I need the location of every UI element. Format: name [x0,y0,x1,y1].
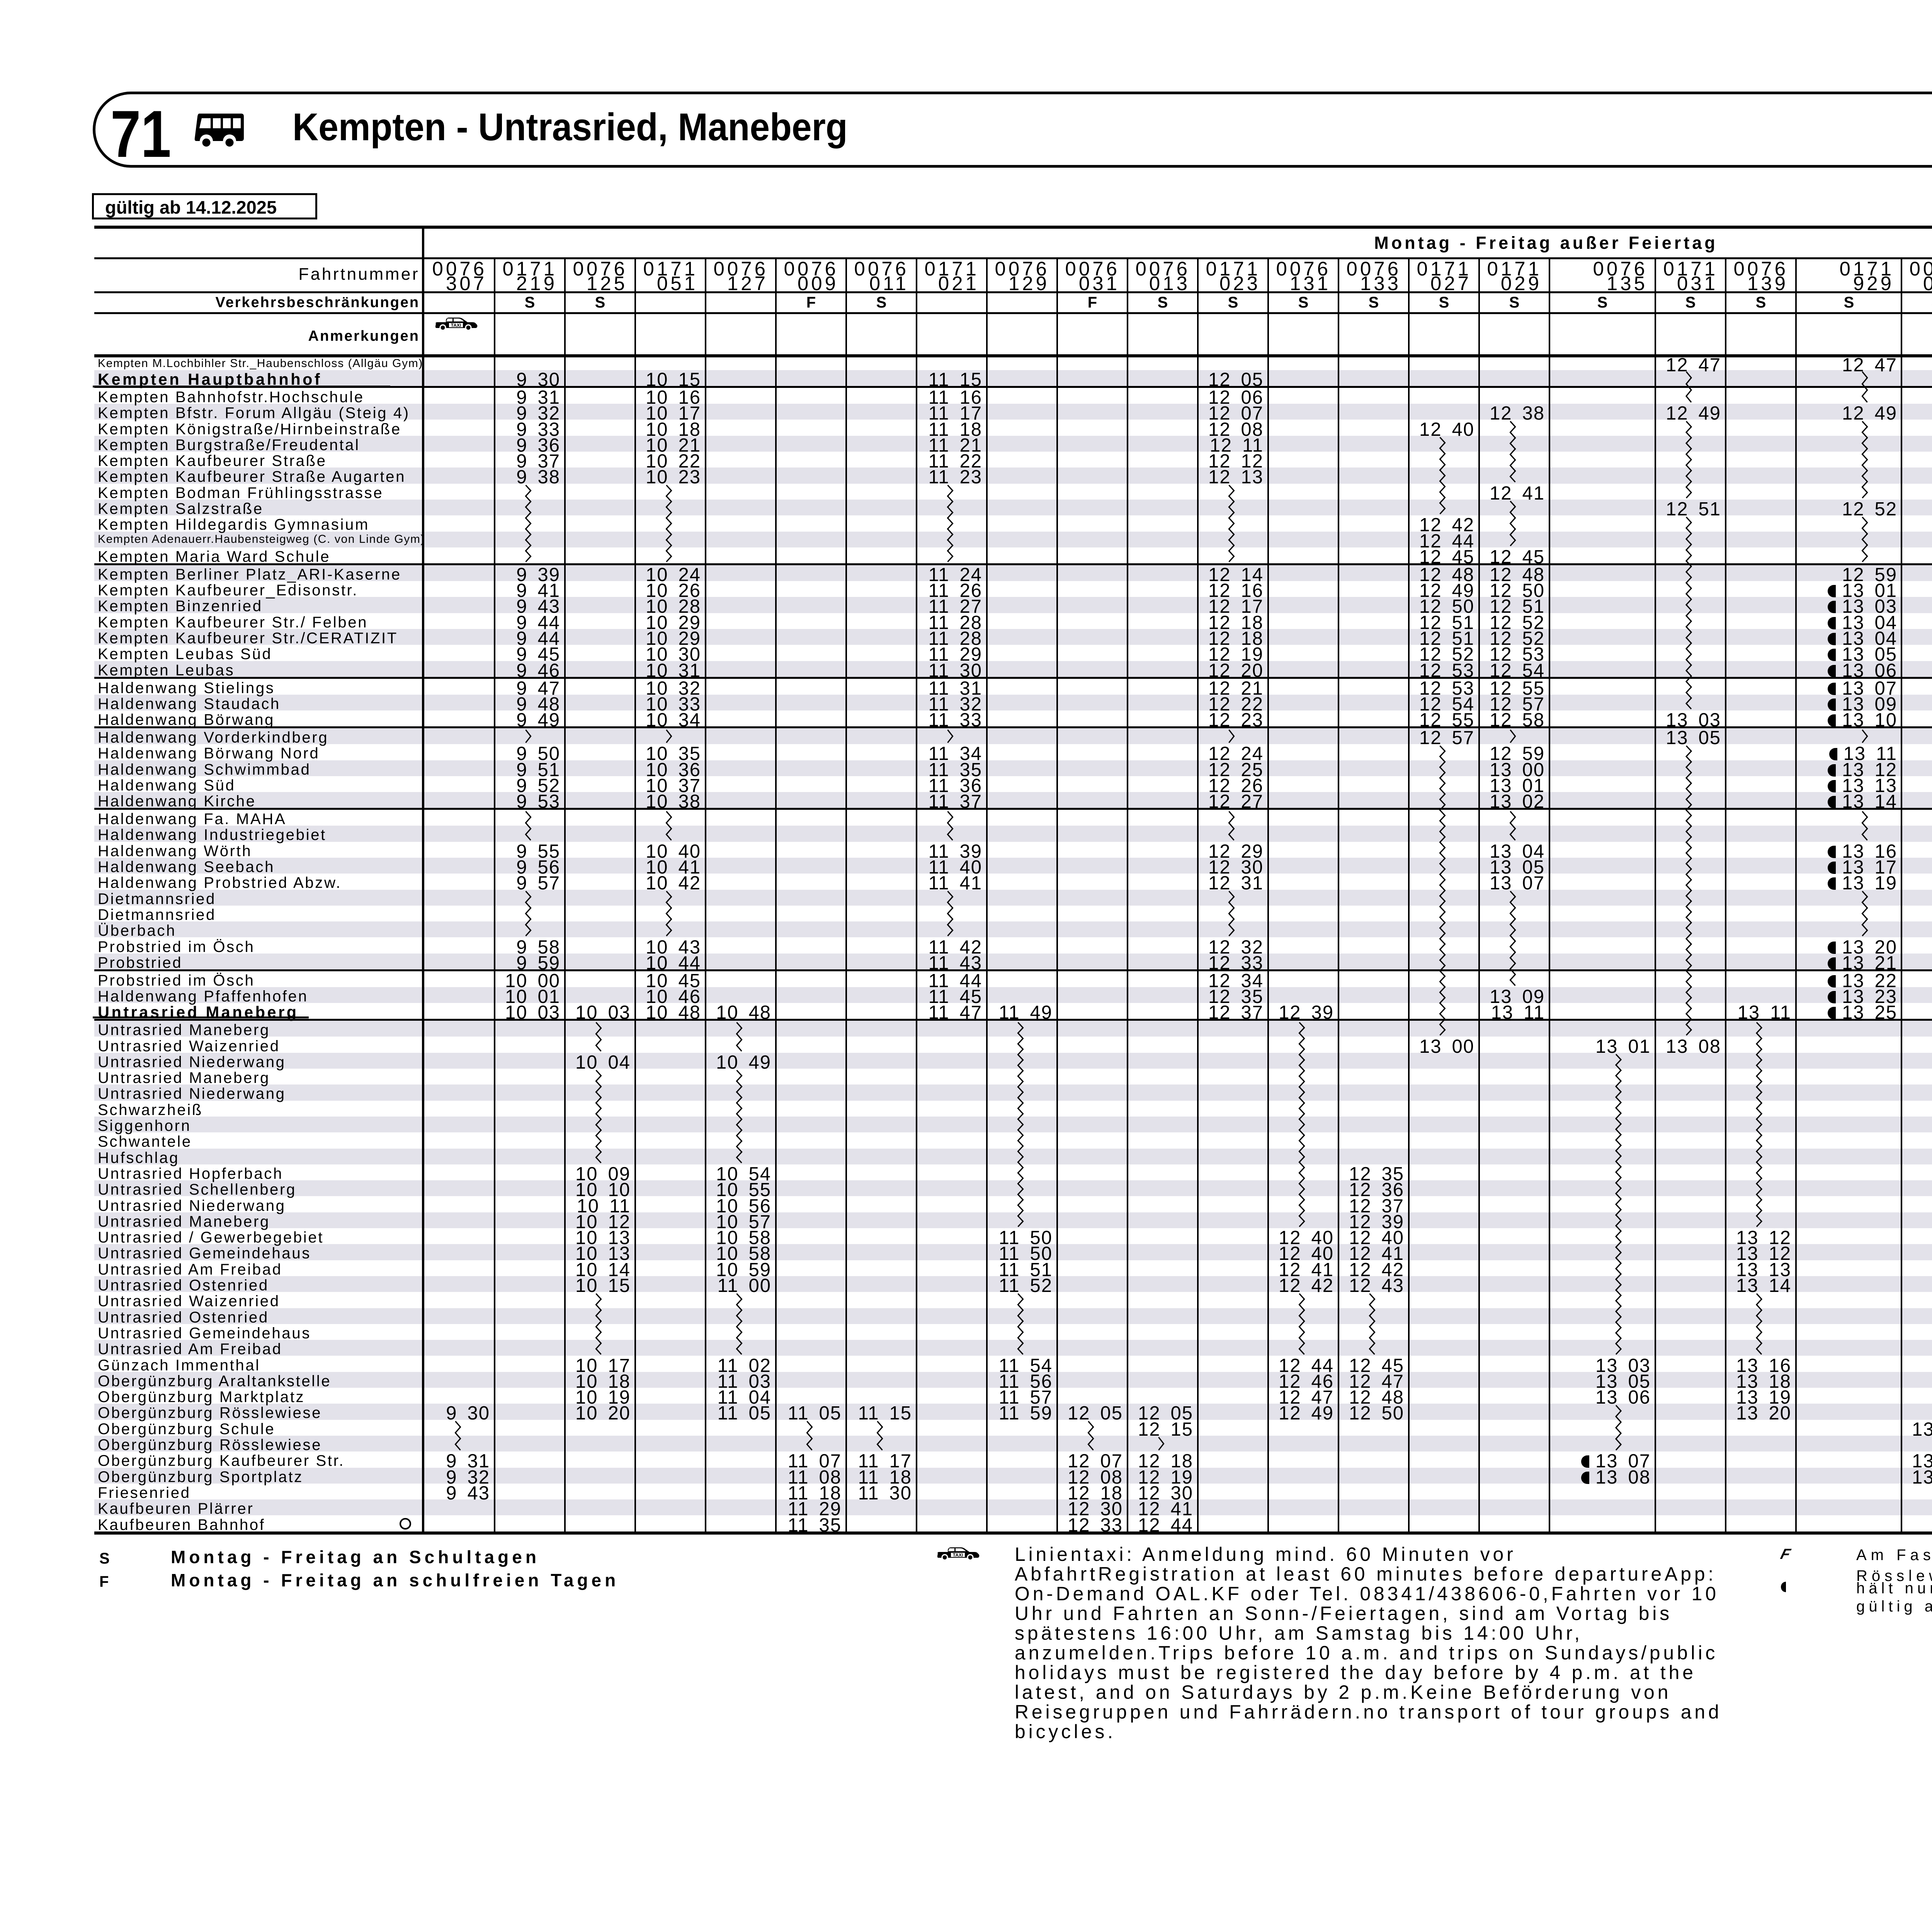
svg-text:TAXI: TAXI [953,1552,963,1558]
